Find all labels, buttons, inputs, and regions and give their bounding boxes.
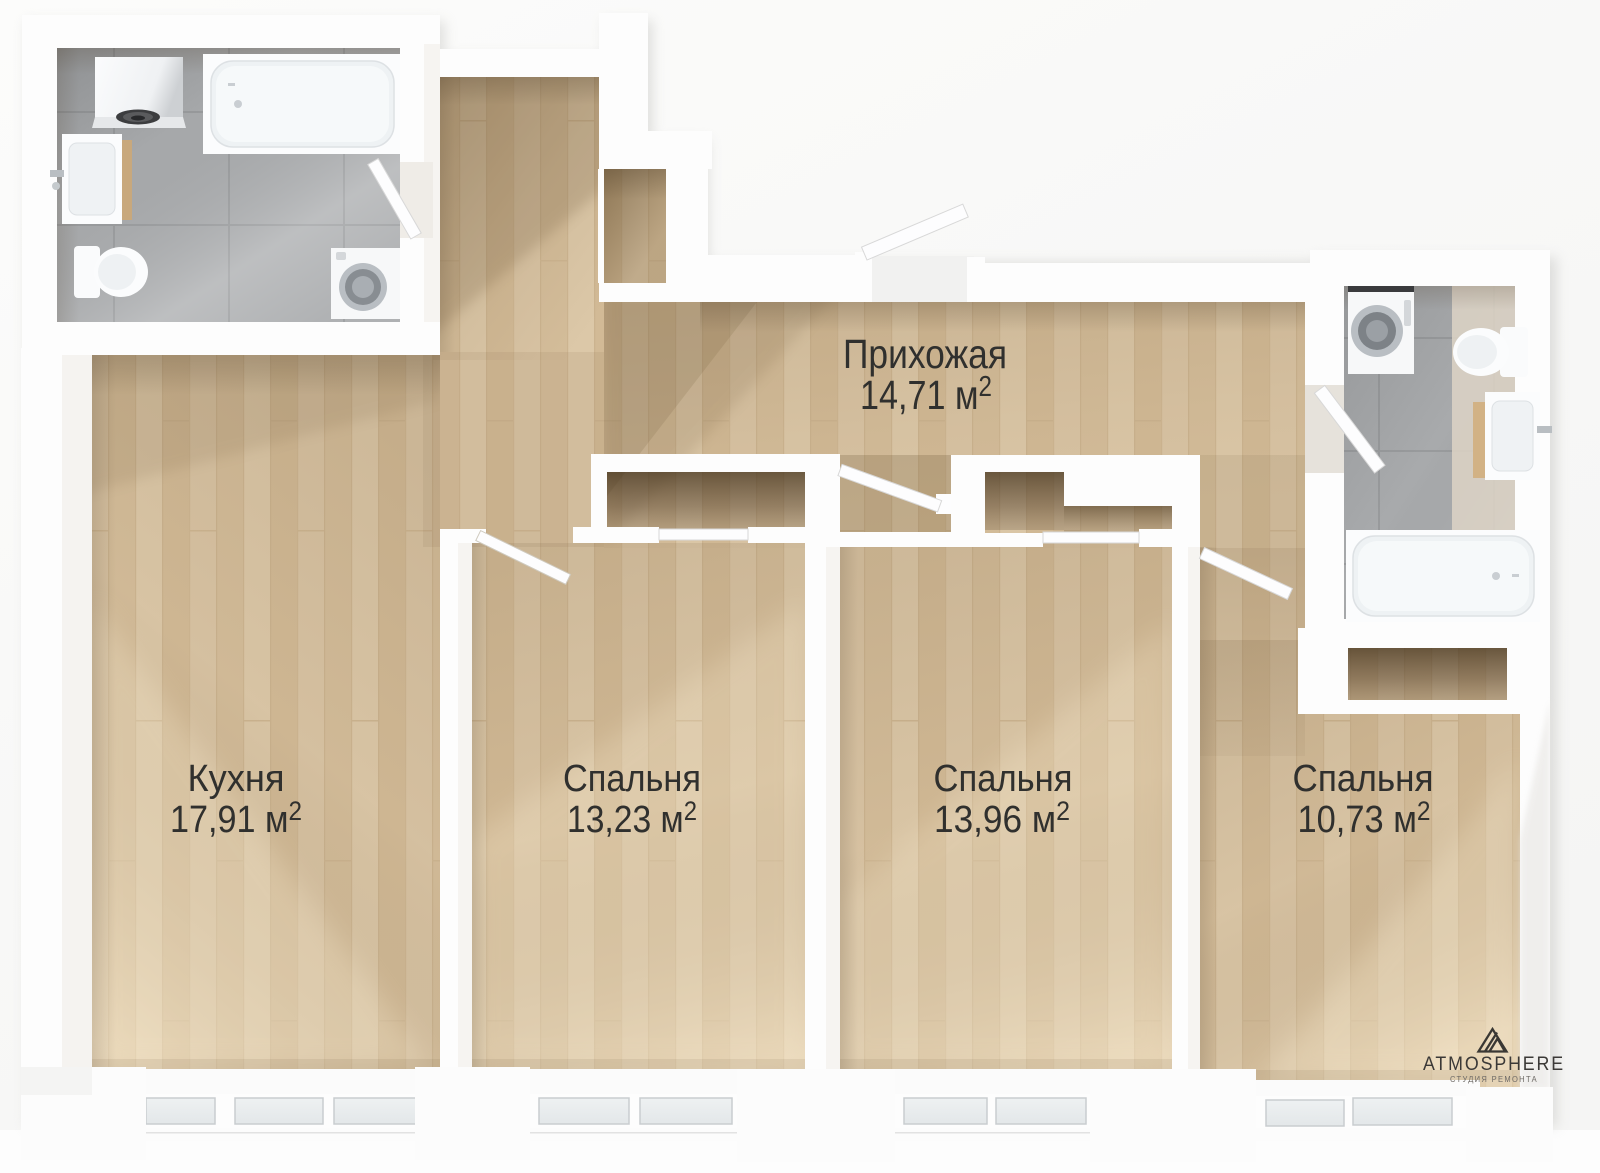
- svg-text:Спальня: Спальня: [1293, 758, 1434, 800]
- svg-text:13,23 м2: 13,23 м2: [567, 796, 697, 841]
- svg-text:17,91 м2: 17,91 м2: [170, 796, 302, 841]
- svg-text:СТУДИЯ РЕМОНТА: СТУДИЯ РЕМОНТА: [1450, 1074, 1538, 1084]
- svg-text:ATMOSPHERE: ATMOSPHERE: [1423, 1054, 1565, 1075]
- svg-text:Спальня: Спальня: [563, 758, 701, 800]
- svg-text:Спальня: Спальня: [934, 758, 1073, 800]
- svg-text:Кухня: Кухня: [188, 758, 285, 800]
- svg-text:10,73 м2: 10,73 м2: [1298, 796, 1431, 841]
- svg-text:14,71 м2: 14,71 м2: [860, 371, 992, 418]
- svg-text:13,96 м2: 13,96 м2: [934, 796, 1070, 841]
